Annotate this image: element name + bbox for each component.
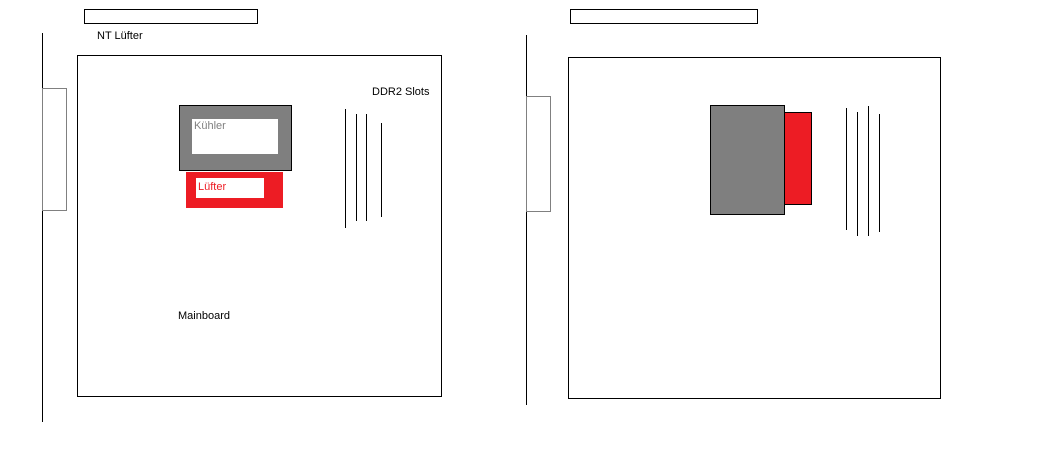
- left-ram-slot-line-3: [366, 114, 367, 221]
- right-case-edge-line: [526, 35, 527, 405]
- left-ram-slot-line-4: [381, 123, 382, 217]
- right-cpu-cooler-box: [710, 105, 785, 215]
- left-io-bracket-box: [42, 88, 67, 211]
- left-cooler-label-box: Kühler: [192, 119, 278, 154]
- left-psu-fan-label: NT Lüfter: [97, 30, 143, 43]
- left-fan-label: Lüfter: [196, 178, 264, 194]
- left-psu-fan-box: [84, 9, 258, 24]
- left-ddr2-slots-label: DDR2 Slots: [372, 86, 429, 99]
- right-ram-slot-line-4: [879, 114, 880, 232]
- left-mainboard-label: Mainboard: [178, 310, 230, 323]
- right-ram-slot-line-3: [868, 106, 869, 236]
- pc-case-layout-diagram: NT Lüfter DDR2 Slots Kühler Lüfter Mainb…: [0, 0, 1052, 458]
- right-io-bracket-box: [526, 96, 551, 212]
- left-ram-slot-line-1: [345, 109, 346, 228]
- right-ram-slot-line-2: [857, 112, 858, 236]
- right-psu-fan-box: [570, 9, 758, 24]
- left-cooler-label: Kühler: [192, 119, 278, 133]
- left-fan-label-box: Lüfter: [196, 178, 264, 198]
- right-ram-slot-line-1: [846, 108, 847, 230]
- left-ram-slot-line-2: [356, 114, 357, 221]
